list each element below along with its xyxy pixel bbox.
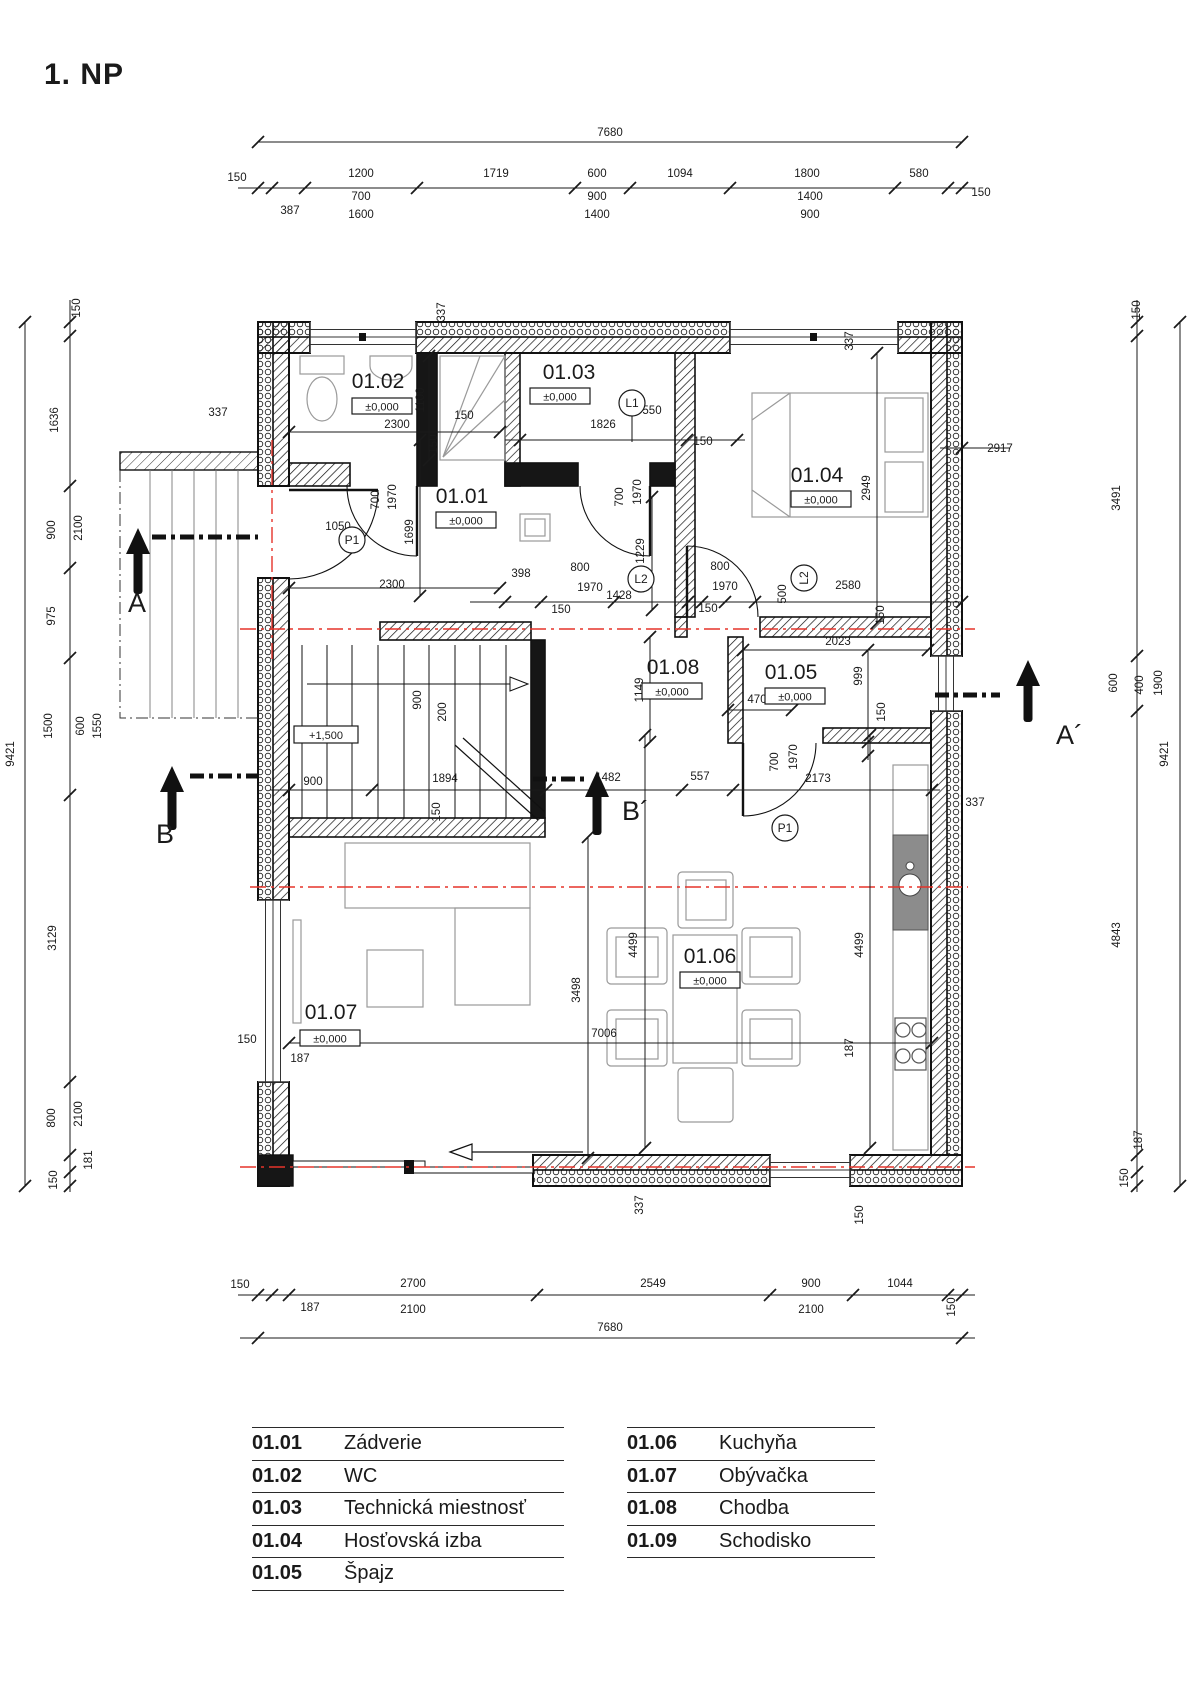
dim-label: 975 (46, 606, 58, 625)
dim-label: 187 (1133, 1130, 1145, 1149)
window-top-right (730, 322, 898, 353)
dim-label: 9421 (1159, 741, 1171, 767)
room-code: 01.01 (436, 485, 489, 508)
dim-label: 3498 (571, 977, 583, 1003)
dim-label: 2023 (825, 636, 851, 648)
floor-plan-svg: 7680150120017196001094180058015038770016… (0, 0, 1200, 1698)
dim-label: 337 (436, 302, 448, 321)
dim-label: 1550 (92, 713, 104, 739)
room-code: 01.08 (647, 656, 700, 679)
legend-room-code: 01.07 (627, 1465, 719, 1488)
room-code: 01.03 (543, 361, 596, 384)
legend-room-code: 01.02 (252, 1465, 344, 1488)
window-right (931, 656, 962, 711)
window-top-left (310, 322, 416, 353)
legend-room-name: Obývačka (719, 1465, 875, 1488)
dim-label: 1428 (606, 590, 632, 602)
dim-label: 1400 (584, 209, 610, 221)
legend-column-2: 01.06Kuchyňa01.07Obývačka01.08Chodba01.0… (627, 1427, 875, 1558)
dim-label: 1229 (635, 538, 647, 564)
shower (440, 356, 505, 460)
dining-set (607, 872, 800, 1122)
stove-burners (895, 1018, 926, 1070)
dim-label: 2949 (861, 475, 873, 501)
wall-stairs-bottom (289, 818, 545, 837)
dim-label: 200 (437, 702, 449, 721)
door-tag-label: L1 (625, 396, 639, 410)
dim-label: 2580 (835, 580, 861, 592)
dim-label: 3491 (1111, 485, 1123, 511)
dim-label: 1200 (348, 168, 374, 180)
sink-faucet (906, 862, 914, 870)
section-arrow-shaft (593, 793, 602, 835)
legend-room-name: Technická miestnosť (344, 1497, 564, 1520)
dim-label: 2100 (73, 515, 85, 541)
dim-label: 337 (634, 1195, 646, 1214)
room-elevation: ±0,000 (365, 402, 399, 414)
legend-row: 01.04Hosťovská izba (252, 1525, 564, 1558)
dim-label: 1400 (797, 191, 823, 203)
exterior-walls (258, 322, 962, 1186)
dim-label: 1826 (590, 419, 616, 431)
dim-label: 181 (83, 1150, 95, 1169)
dim-label: 1100 (415, 388, 427, 413)
dim-label: 150 (454, 410, 473, 422)
legend-row: 01.03Technická miestnosť (252, 1492, 564, 1525)
drawing-sheet: 1. NP (0, 0, 1200, 1698)
legend-row: 01.09Schodisko (627, 1525, 875, 1559)
dim-label: 700 (614, 487, 626, 506)
dim-label: 4499 (628, 932, 640, 958)
hall-cabinet (520, 514, 550, 541)
wall-tech-bottom-b (650, 463, 675, 486)
door-tag-label: P1 (345, 533, 360, 547)
legend-room-code: 01.09 (627, 1530, 719, 1553)
wall-pantry-bottom (823, 728, 931, 743)
dim-label: 7680 (597, 1322, 623, 1334)
dim-label: 1970 (632, 479, 644, 505)
door-tag-label: L2 (634, 572, 648, 586)
dim-label: 7006 (591, 1028, 617, 1040)
dim-label: 2917 (987, 443, 1013, 455)
sofa (293, 843, 530, 1023)
legend-row: 01.06Kuchyňa (627, 1427, 875, 1460)
door-tags: L1L2L2P1P1 (339, 390, 817, 841)
dim-label: 150 (971, 187, 990, 199)
section-label: B´ (622, 796, 649, 826)
legend-room-code: 01.05 (252, 1562, 344, 1585)
door-tag-label: P1 (778, 821, 793, 835)
dim-label: 150 (551, 604, 570, 616)
room-elevation: ±0,000 (449, 516, 483, 528)
dim-label: 470 (747, 694, 766, 706)
room-elevation: ±0,000 (655, 687, 689, 699)
dim-label: 1699 (404, 519, 416, 545)
toilet (300, 356, 344, 421)
dim-label: 9421 (5, 741, 17, 767)
dim-label: 2100 (798, 1304, 824, 1316)
dim-label: 1970 (788, 744, 800, 770)
dim-label: 700 (370, 490, 382, 509)
room-code: 01.02 (352, 370, 405, 393)
section-arrow-head (126, 528, 150, 554)
section-label: A (128, 588, 146, 618)
legend-column-1: 01.01Zádverie01.02WC01.03Technická miest… (252, 1427, 564, 1591)
dim-label: 150 (48, 1170, 60, 1189)
dim-label: 187 (300, 1302, 319, 1314)
dim-label: 1636 (49, 407, 61, 433)
dim-label: 600 (587, 168, 606, 180)
legend-room-code: 01.08 (627, 1497, 719, 1520)
dim-label: 580 (909, 168, 928, 180)
dim-label: 398 (511, 568, 530, 580)
dim-label: 900 (303, 776, 322, 788)
dim-label: 2100 (400, 1304, 426, 1316)
wall-stairs-right (531, 640, 545, 818)
dim-label: 1719 (483, 168, 509, 180)
room-elevation: ±0,000 (693, 976, 727, 988)
legend-room-name: Schodisko (719, 1530, 875, 1553)
section-arrow-head (160, 766, 184, 792)
section-label: B (156, 819, 174, 849)
windows (258, 322, 962, 1186)
dim-label: 1094 (667, 168, 693, 180)
dim-label: 150 (946, 1297, 958, 1316)
dim-label: 3129 (47, 925, 59, 951)
dim-label: 150 (428, 434, 440, 453)
dim-label: 2100 (73, 1101, 85, 1127)
dim-label: 1894 (432, 773, 458, 785)
room-elevation: ±0,000 (543, 392, 577, 404)
room-code: 01.07 (305, 1001, 358, 1024)
section-label: A´ (1056, 720, 1083, 750)
porch-slab (120, 452, 258, 470)
wall-right (931, 322, 962, 1155)
stair-direction-arrow (510, 677, 528, 691)
dim-label: 400 (1134, 675, 1146, 694)
dim-label: 150 (71, 298, 83, 317)
legend-room-code: 01.04 (252, 1530, 344, 1553)
dim-label: 1970 (712, 581, 738, 593)
dim-label: 2300 (384, 419, 410, 431)
wall-guest-bottom-b (760, 617, 931, 637)
dim-label: 150 (854, 1205, 866, 1224)
dim-label: 1970 (387, 484, 399, 510)
dim-label: 800 (710, 561, 729, 573)
room-elevation: ±0,000 (804, 495, 838, 507)
dim-label: 1970 (577, 582, 603, 594)
dim-label: 150 (237, 1034, 256, 1046)
dim-label: 150 (876, 702, 888, 721)
legend-row: 01.02WC (252, 1460, 564, 1493)
legend-room-code: 01.01 (252, 1432, 344, 1455)
kitchen-counter (893, 765, 928, 1150)
wall-bottom (258, 1155, 962, 1186)
sink-basin (899, 874, 921, 896)
legend-row: 01.05Špajz (252, 1557, 564, 1591)
dim-label: 387 (280, 205, 299, 217)
wall-tech-guest (675, 353, 695, 617)
dim-label: 900 (800, 209, 819, 221)
legend-row: 01.07Obývačka (627, 1460, 875, 1493)
dim-label: 4843 (1111, 922, 1123, 948)
dim-label: 150 (698, 603, 717, 615)
room-code: 01.06 (684, 945, 737, 968)
dim-label: 7680 (597, 127, 623, 139)
legend-room-name: Chodba (719, 1497, 875, 1520)
dim-label: 900 (587, 191, 606, 203)
legend-row: 01.08Chodba (627, 1492, 875, 1525)
dim-label: 1600 (348, 209, 374, 221)
dim-label: 150 (693, 436, 712, 448)
dim-label: 150 (230, 1279, 249, 1291)
dim-label: 2700 (400, 1278, 426, 1290)
window-left (258, 900, 289, 1082)
dim-label: 600 (1108, 673, 1120, 692)
dim-label: 800 (46, 1108, 58, 1127)
legend-room-name: Zádverie (344, 1432, 564, 1455)
dim-label: 150 (431, 802, 443, 821)
wall-hall-stairs (380, 622, 531, 640)
dim-label: 337 (208, 407, 227, 419)
dim-label: 900 (801, 1278, 820, 1290)
dim-label: 2300 (379, 579, 405, 591)
level-label: +1,500 (309, 730, 343, 742)
dim-label: 557 (690, 771, 709, 783)
dim-label: 2173 (805, 773, 831, 785)
dim-label: 4499 (854, 932, 866, 958)
dim-label: 2549 (640, 1278, 666, 1290)
dim-label: 1500 (43, 713, 55, 739)
dim-label: 600 (75, 716, 87, 735)
dim-label: 150 (875, 605, 887, 624)
legend-row: 01.01Zádverie (252, 1427, 564, 1460)
dim-label: 1900 (1153, 670, 1165, 696)
section-arrow-shaft (1024, 682, 1033, 722)
legend-room-name: Špajz (344, 1562, 564, 1585)
dim-label: 550 (642, 405, 661, 417)
dim-label: 187 (844, 1038, 856, 1057)
dim-label: 999 (853, 666, 865, 685)
legend-room-code: 01.03 (252, 1497, 344, 1520)
door-tag-label: L2 (797, 571, 811, 585)
dim-label: 1800 (794, 168, 820, 180)
legend-room-code: 01.06 (627, 1432, 719, 1455)
dim-label: 150 (227, 172, 246, 184)
dim-label: 337 (844, 331, 856, 350)
dim-label: 150 (1119, 1168, 1131, 1187)
legend-room-name: Kuchyňa (719, 1432, 875, 1455)
wall-guest-bottom-a (675, 617, 687, 637)
dim-label: 800 (570, 562, 589, 574)
room-code: 01.05 (765, 661, 818, 684)
dim-label: 700 (351, 191, 370, 203)
dim-label: 500 (777, 584, 789, 603)
legend-room-name: Hosťovská izba (344, 1530, 564, 1553)
dim-label: 187 (290, 1053, 309, 1065)
dim-label: 900 (46, 520, 58, 539)
dim-label: 1044 (887, 1278, 913, 1290)
room-elevation: ±0,000 (313, 1034, 347, 1046)
dim-label: 150 (1131, 300, 1143, 319)
legend-room-name: WC (344, 1465, 564, 1488)
dim-label: 900 (412, 690, 424, 709)
stair-break-line (455, 745, 538, 820)
room-elevation: ±0,000 (778, 692, 812, 704)
section-arrow-head (1016, 660, 1040, 686)
room-code: 01.04 (791, 464, 844, 487)
dim-label: 337 (965, 797, 984, 809)
dim-label: 700 (769, 752, 781, 771)
window-bottom (770, 1155, 850, 1186)
wall-wc-bottom (289, 463, 350, 486)
wall-tech-bottom-a (505, 463, 578, 486)
